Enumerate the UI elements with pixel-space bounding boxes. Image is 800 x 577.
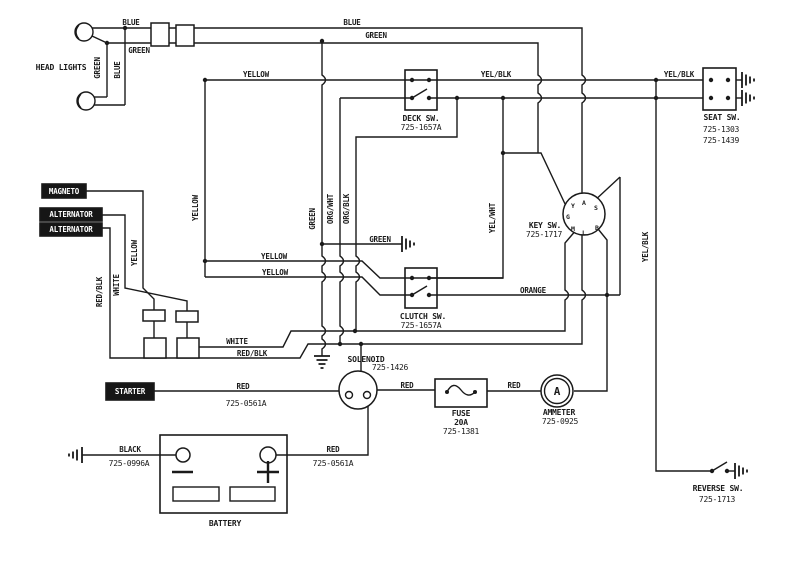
solenoid-symbol — [339, 371, 377, 409]
key-switch-label: KEY SW. — [529, 221, 561, 230]
wire-label-orange: ORANGE — [520, 286, 547, 295]
wire-part-battery-red: 725-0561A — [313, 459, 354, 468]
wire-label-green-ground: GREEN — [369, 235, 391, 244]
headlamp-stub — [92, 36, 107, 43]
wire-label-red-battery: RED — [327, 445, 341, 454]
left-connectors — [143, 310, 199, 358]
key-terminal-s: S — [594, 204, 598, 212]
junction-dots — [105, 26, 658, 346]
key-terminal-y: Y — [571, 202, 575, 210]
wire-label-redblk-vertical: RED/BLK — [95, 276, 104, 307]
ground-symbol-green-mid — [402, 236, 414, 252]
fuse-box — [435, 379, 487, 407]
key-b-to-ammeter — [574, 224, 607, 391]
ground-symbol-seat-1 — [742, 72, 754, 88]
wire-label-white-vertical: WHITE — [112, 274, 121, 296]
ammeter-label: AMMETER — [543, 408, 576, 417]
seat-switch-part-2: 725-1439 — [703, 136, 740, 145]
ground-symbol-reverse — [735, 463, 747, 479]
wire-label-red-ammeter: RED — [508, 381, 522, 390]
alternator-label-a: ALTERNATOR — [49, 210, 93, 219]
fuse-rating: 20A — [454, 418, 468, 427]
wire-label-yelblk-deck: YEL/BLK — [481, 70, 512, 79]
solenoid-part: 725-1426 — [372, 363, 409, 372]
wire-label-white-main: WHITE — [226, 337, 248, 346]
wiring-diagram: HEAD LIGHTS MAGNETO ALTERNATOR ALTERNATO… — [0, 0, 800, 577]
key-terminal-l: L — [582, 229, 586, 237]
blue-wire — [92, 28, 586, 193]
clutch-switch-label: CLUTCH SW. — [400, 312, 446, 321]
reverse-switch-part: 725-1713 — [699, 495, 736, 504]
fuse-label: FUSE — [452, 409, 471, 418]
fuse-part: 725-1381 — [443, 427, 480, 436]
wire-label-green-headlight: GREEN — [128, 46, 150, 55]
starter-label: STARTER — [115, 387, 146, 396]
wire-label-redblk-main: RED/BLK — [237, 349, 268, 358]
wire-part-battery-black: 725-0996A — [109, 459, 150, 468]
battery-label: BATTERY — [209, 519, 242, 528]
wire-label-yelwht: YEL/WHT — [488, 202, 497, 233]
wire-label-orgwht: ORG/WHT — [326, 193, 335, 224]
wiring-diagram-canvas: HEAD LIGHTS MAGNETO ALTERNATOR ALTERNATO… — [0, 0, 800, 577]
deck-switch-part: 725-1657A — [401, 123, 442, 132]
key-switch-part: 725-1717 — [526, 230, 563, 239]
wire-label-blue-vertical: BLUE — [113, 61, 122, 79]
wire-label-green-vertical: GREEN — [93, 57, 102, 79]
wire-label-yellow-magneto: YELLOW — [130, 239, 139, 266]
wire-label-green-ground-vertical: GREEN — [308, 208, 317, 230]
ground-symbol-battery — [69, 447, 82, 463]
wire-label-red-fuse: RED — [401, 381, 415, 390]
yellow-row-upper — [205, 261, 412, 278]
wire-label-green-main: GREEN — [365, 31, 387, 40]
alternator-label-b: ALTERNATOR — [49, 225, 93, 234]
key-l-redblk-wire — [102, 228, 586, 358]
seat-switch-label: SEAT SW. — [704, 113, 741, 122]
reverse-switch-blade — [712, 462, 727, 471]
head-lights-label: HEAD LIGHTS — [36, 63, 87, 72]
wire-label-yelblk-seat: YEL/BLK — [664, 70, 695, 79]
magneto-label: MAGNETO — [49, 187, 80, 196]
clutch-switch-box — [405, 268, 437, 308]
wire-label-yellow-mid-lower: YELLOW — [262, 268, 289, 277]
wire-label-yellow-mid-upper: YELLOW — [261, 252, 288, 261]
green-key-diagonal — [503, 153, 566, 206]
yellow-row-lower — [205, 277, 412, 295]
wire-label-yelblk-vertical: YEL/BLK — [641, 231, 650, 262]
key-terminal-g: G — [566, 213, 570, 221]
wire-label-orgblk: ORG/BLK — [342, 193, 351, 224]
wire-color-labels: BLUE BLUE GREEN GREEN GREEN BLUE YELLOW … — [93, 18, 695, 468]
ground-symbol-seat-2 — [742, 90, 754, 106]
wire-label-blue-main: BLUE — [343, 18, 361, 27]
green-ground-vertical — [322, 43, 326, 356]
seat-switch-part-1: 725-1303 — [703, 125, 740, 134]
key-terminal-b: B — [595, 224, 599, 232]
wire-label-red-starter: RED — [237, 382, 251, 391]
key-terminal-m: M — [571, 225, 575, 233]
key-terminal-a: A — [582, 199, 586, 207]
deck-switch-box — [405, 70, 437, 110]
battery-red-wire — [276, 406, 368, 455]
ammeter-symbol-a: A — [554, 385, 561, 398]
wire-label-yellow-left-vertical: YELLOW — [191, 194, 200, 221]
yel-blk-vertical — [656, 80, 710, 471]
wire-label-blue-headlight: BLUE — [122, 18, 140, 27]
wire-part-starter: 725-0561A — [226, 399, 267, 408]
ammeter-part: 725-0925 — [542, 417, 579, 426]
wire-label-black-battery: BLACK — [119, 445, 141, 454]
deck-switch-label: DECK SW. — [403, 114, 440, 123]
clutch-switch-part: 725-1657A — [401, 321, 442, 330]
wire-label-yellow-main: YELLOW — [243, 70, 270, 79]
seat-switch-box — [703, 68, 736, 110]
ground-symbol-chassis — [314, 356, 330, 368]
reverse-switch-label: REVERSE SW. — [693, 484, 744, 493]
